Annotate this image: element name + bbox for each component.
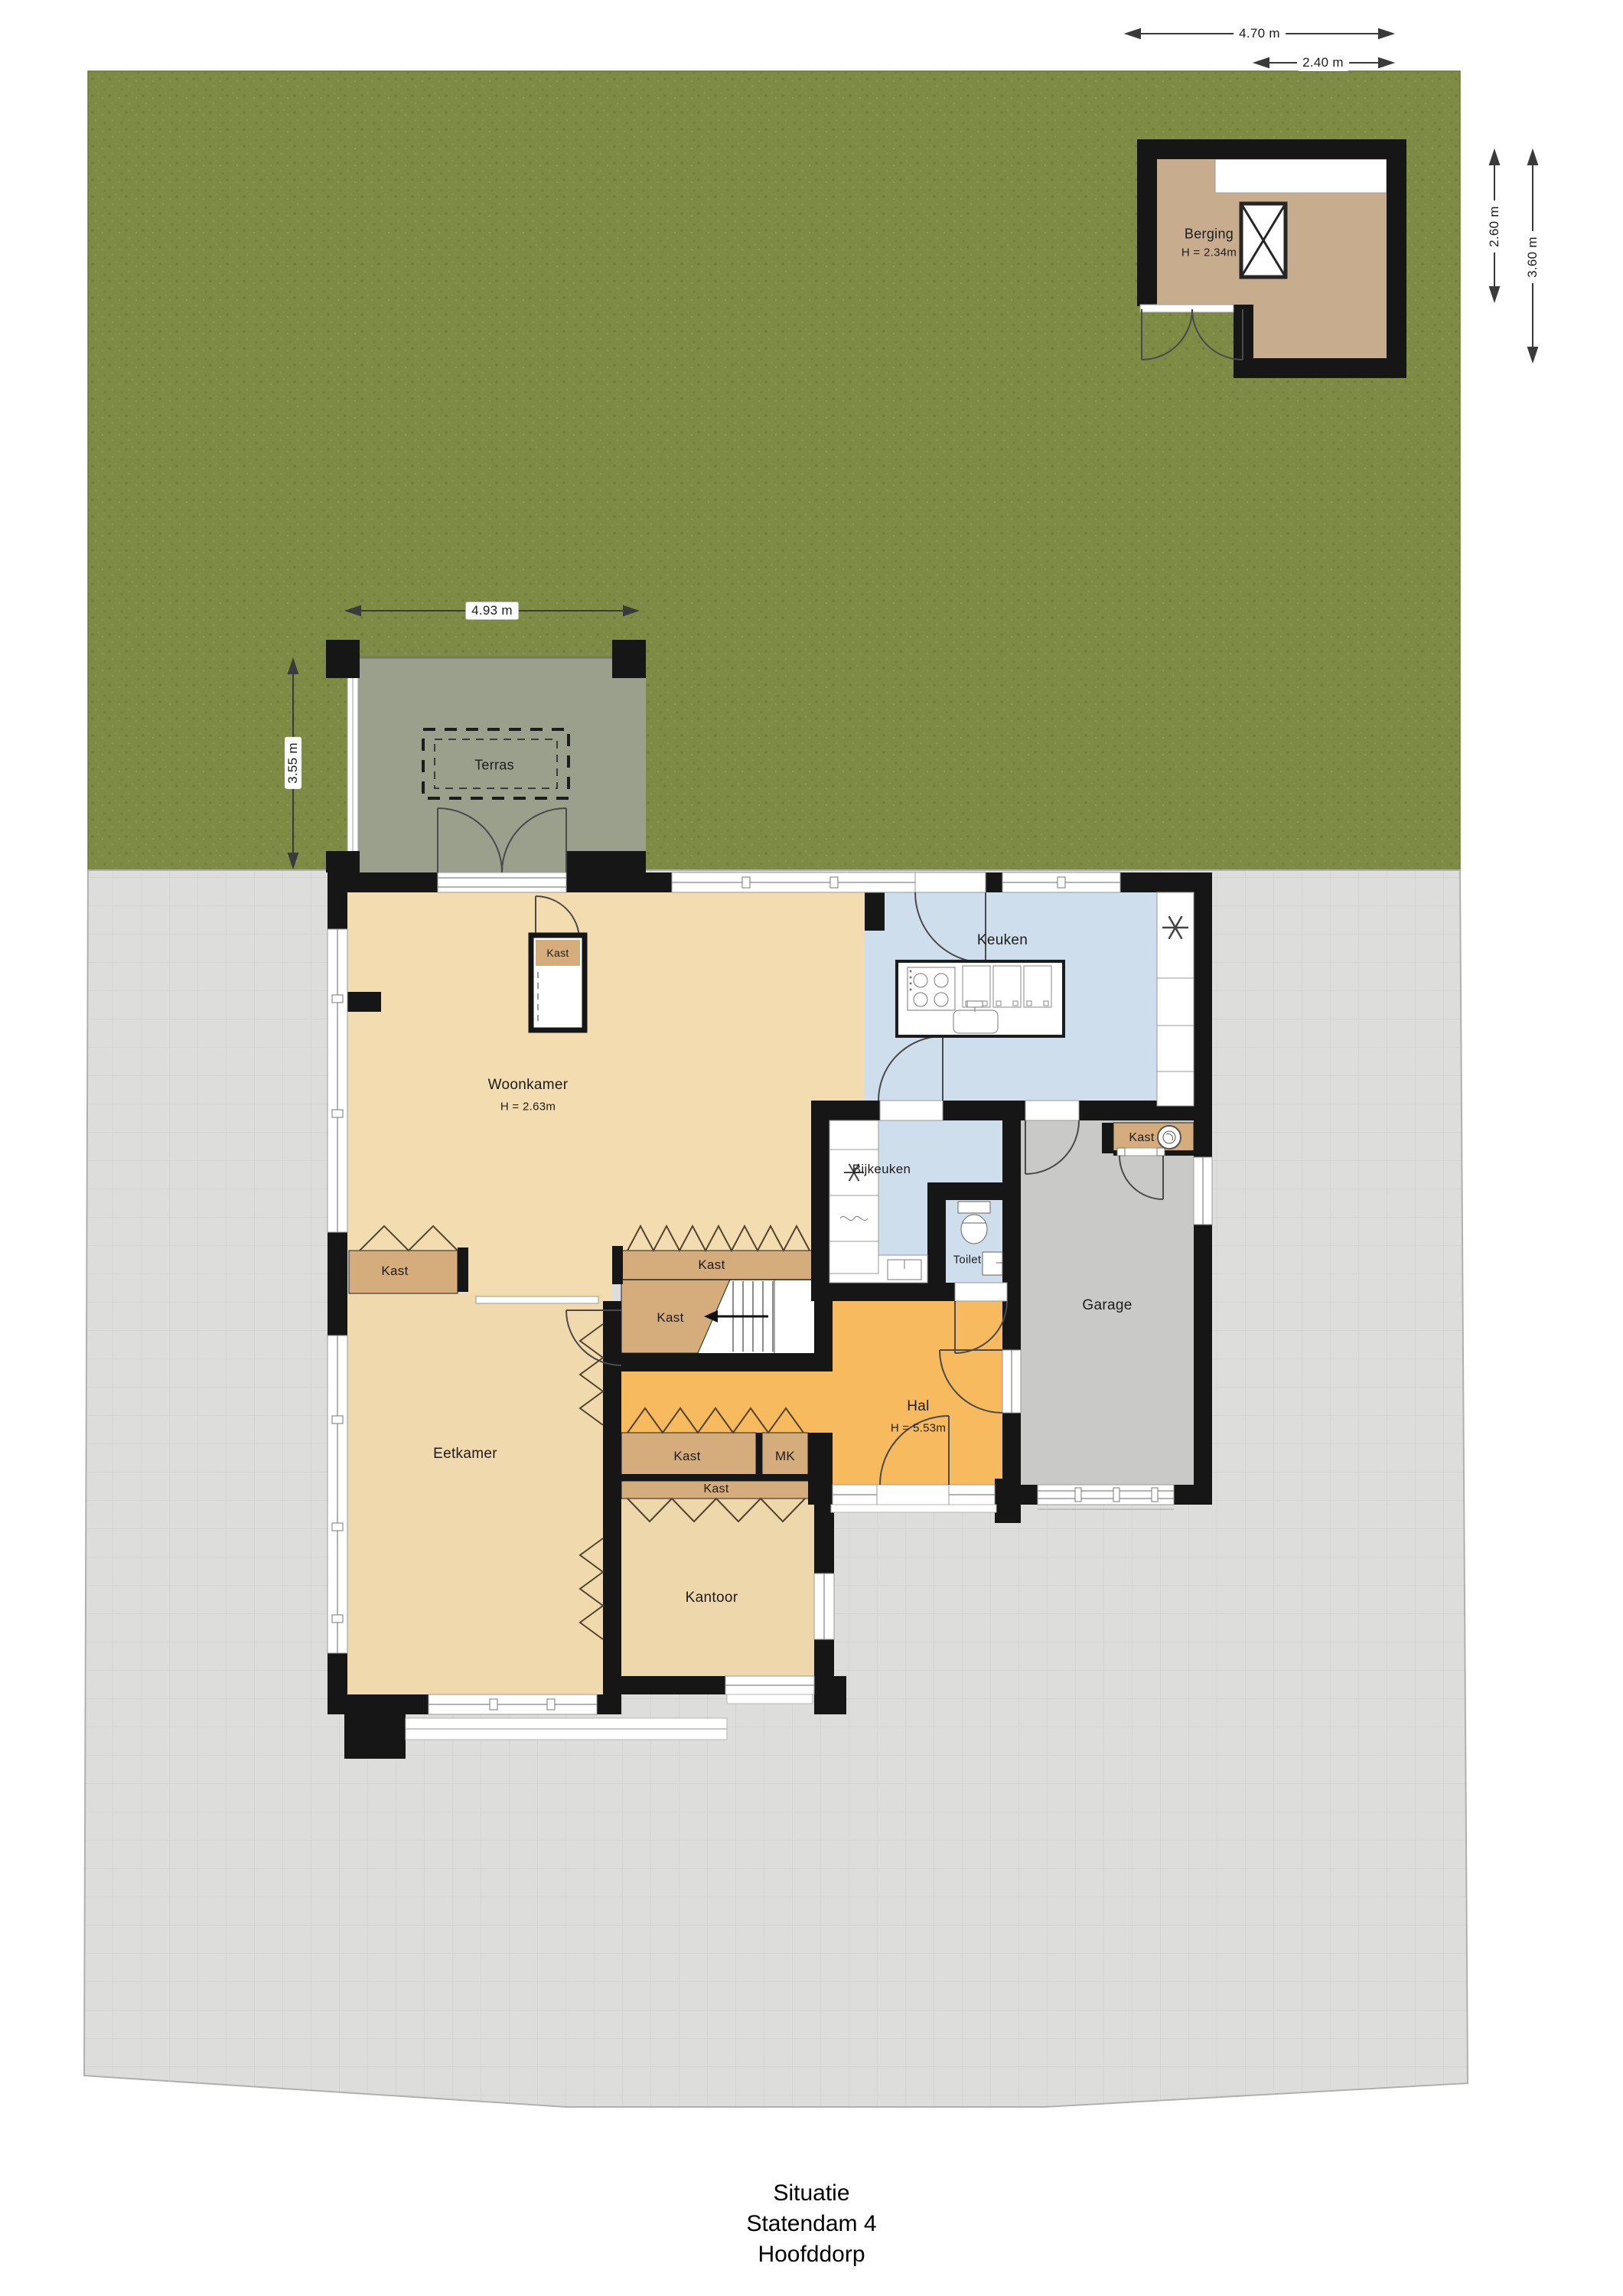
label-eetkamer: Eetkamer [433,1446,497,1463]
label-kast-kantoor: Kast [703,1482,728,1496]
room-kantoor-floor [621,1499,814,1676]
label-woonkamer-height: H = 2.63m [500,1101,556,1114]
plan-title-line3: Hoofddorp [0,2239,1623,2270]
room-eetkamer-floor [347,1293,603,1694]
dim-shed-depth-inner: 2.60 m [1486,201,1503,253]
label-kantoor: Kantoor [686,1590,738,1606]
kitchen-island [897,961,1064,1036]
label-terras: Terras [474,758,514,774]
label-bijkeuken: Bijkeuken [852,1162,911,1177]
shed-storage-box-icon [1241,204,1286,277]
label-berging: Berging [1185,227,1234,243]
label-kast-garage: Kast [1129,1131,1154,1145]
terrace [326,640,646,872]
wc-cistern-icon [958,1202,990,1213]
hand-basin-icon [983,1252,1002,1275]
dim-terrace-width: 4.93 m [465,602,519,620]
dim-shed-depth-outer: 3.60 m [1524,231,1541,283]
label-kast-stairs: Kast [657,1310,683,1326]
shed-bench [1215,159,1387,193]
label-toilet: Toilet [953,1254,982,1267]
wc-bowl-icon [961,1215,987,1244]
label-mk: MK [775,1449,795,1464]
floorplan-page: Woonkamer H = 2.63m Keuken Bijkeuken Toi… [0,0,1623,2296]
room-woonkamer-floor [347,892,865,1251]
terrace-pillar-sw [326,851,360,872]
plan-title-line2: Statendam 4 [0,2209,1623,2239]
plan-title-line1: Situatie [0,2178,1623,2209]
plan-title-block: Situatie Statendam 4 Hoofddorp [0,2178,1623,2270]
label-woonkamer: Woonkamer [488,1077,569,1094]
label-kast-hal: Kast [673,1449,700,1464]
shed-door-opening [1140,305,1234,312]
label-hal-height: H = 5.53m [891,1422,946,1435]
kitchen-counter [1157,892,1194,1106]
dim-terrace-depth: 3.55 m [285,737,301,789]
label-kast-woonkamer: Kast [546,947,569,959]
terrace-pillar-nw [326,640,360,678]
terrace-pillar-ne [612,640,646,678]
washing-machine-icon [1158,1126,1181,1149]
label-keuken: Keuken [977,932,1028,949]
dim-shed-width-outer: 4.70 m [1234,25,1286,42]
label-hal: Hal [907,1398,929,1415]
label-kast-bifold: Kast [381,1264,408,1279]
room-hal-floor-main [833,1301,1002,1485]
dim-shed-width-inner: 2.40 m [1297,54,1349,71]
label-berging-height: H = 2.34m [1181,246,1237,259]
label-garage: Garage [1082,1297,1132,1314]
label-kast-long: Kast [698,1257,725,1273]
floorplan-drawing [0,0,1623,2296]
